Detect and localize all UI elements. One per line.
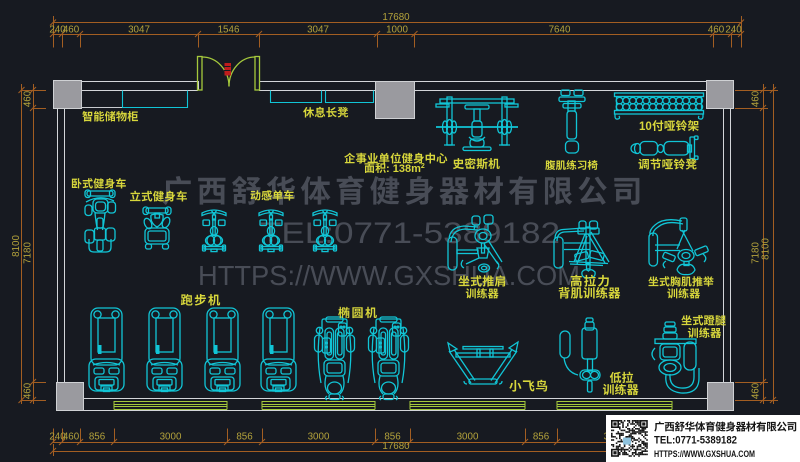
svg-text:: 138m2: : 138m2 (386, 163, 425, 175)
svg-text:7180: 7180 (23, 242, 34, 264)
svg-text:17680: 17680 (382, 441, 410, 452)
svg-text:3047: 3047 (128, 24, 150, 35)
svg-text:460: 460 (63, 432, 80, 443)
svg-text:856: 856 (89, 432, 106, 443)
svg-text:460: 460 (23, 90, 34, 107)
svg-text:HTTPS://WWW.GXSHUA.COM: HTTPS://WWW.GXSHUA.COM (198, 260, 580, 291)
svg-text:1000: 1000 (386, 24, 408, 35)
svg-text:460: 460 (751, 382, 762, 399)
svg-text:3047: 3047 (307, 24, 329, 35)
svg-text:7640: 7640 (549, 24, 571, 35)
svg-text:1546: 1546 (218, 24, 240, 35)
svg-text:460: 460 (708, 24, 725, 35)
svg-text:856: 856 (236, 432, 253, 443)
svg-text:8100: 8100 (11, 235, 22, 257)
svg-text:460: 460 (63, 24, 80, 35)
svg-text:10: 10 (639, 121, 652, 133)
svg-text:3000: 3000 (308, 432, 330, 443)
svg-text:HTTPS://WWW.GXSHUA.COM: HTTPS://WWW.GXSHUA.COM (654, 449, 755, 460)
svg-text:240: 240 (725, 24, 742, 35)
svg-text:460: 460 (23, 382, 34, 399)
svg-text:TEL:0771-5389182: TEL:0771-5389182 (654, 435, 737, 447)
svg-text:17680: 17680 (382, 12, 410, 23)
svg-text:856: 856 (533, 432, 550, 443)
svg-text:3000: 3000 (160, 432, 182, 443)
svg-text:460: 460 (751, 90, 762, 107)
svg-text:8100: 8100 (761, 238, 772, 260)
svg-text:3000: 3000 (457, 432, 479, 443)
svg-text:TEL:0771-5389182: TEL:0771-5389182 (260, 217, 560, 250)
